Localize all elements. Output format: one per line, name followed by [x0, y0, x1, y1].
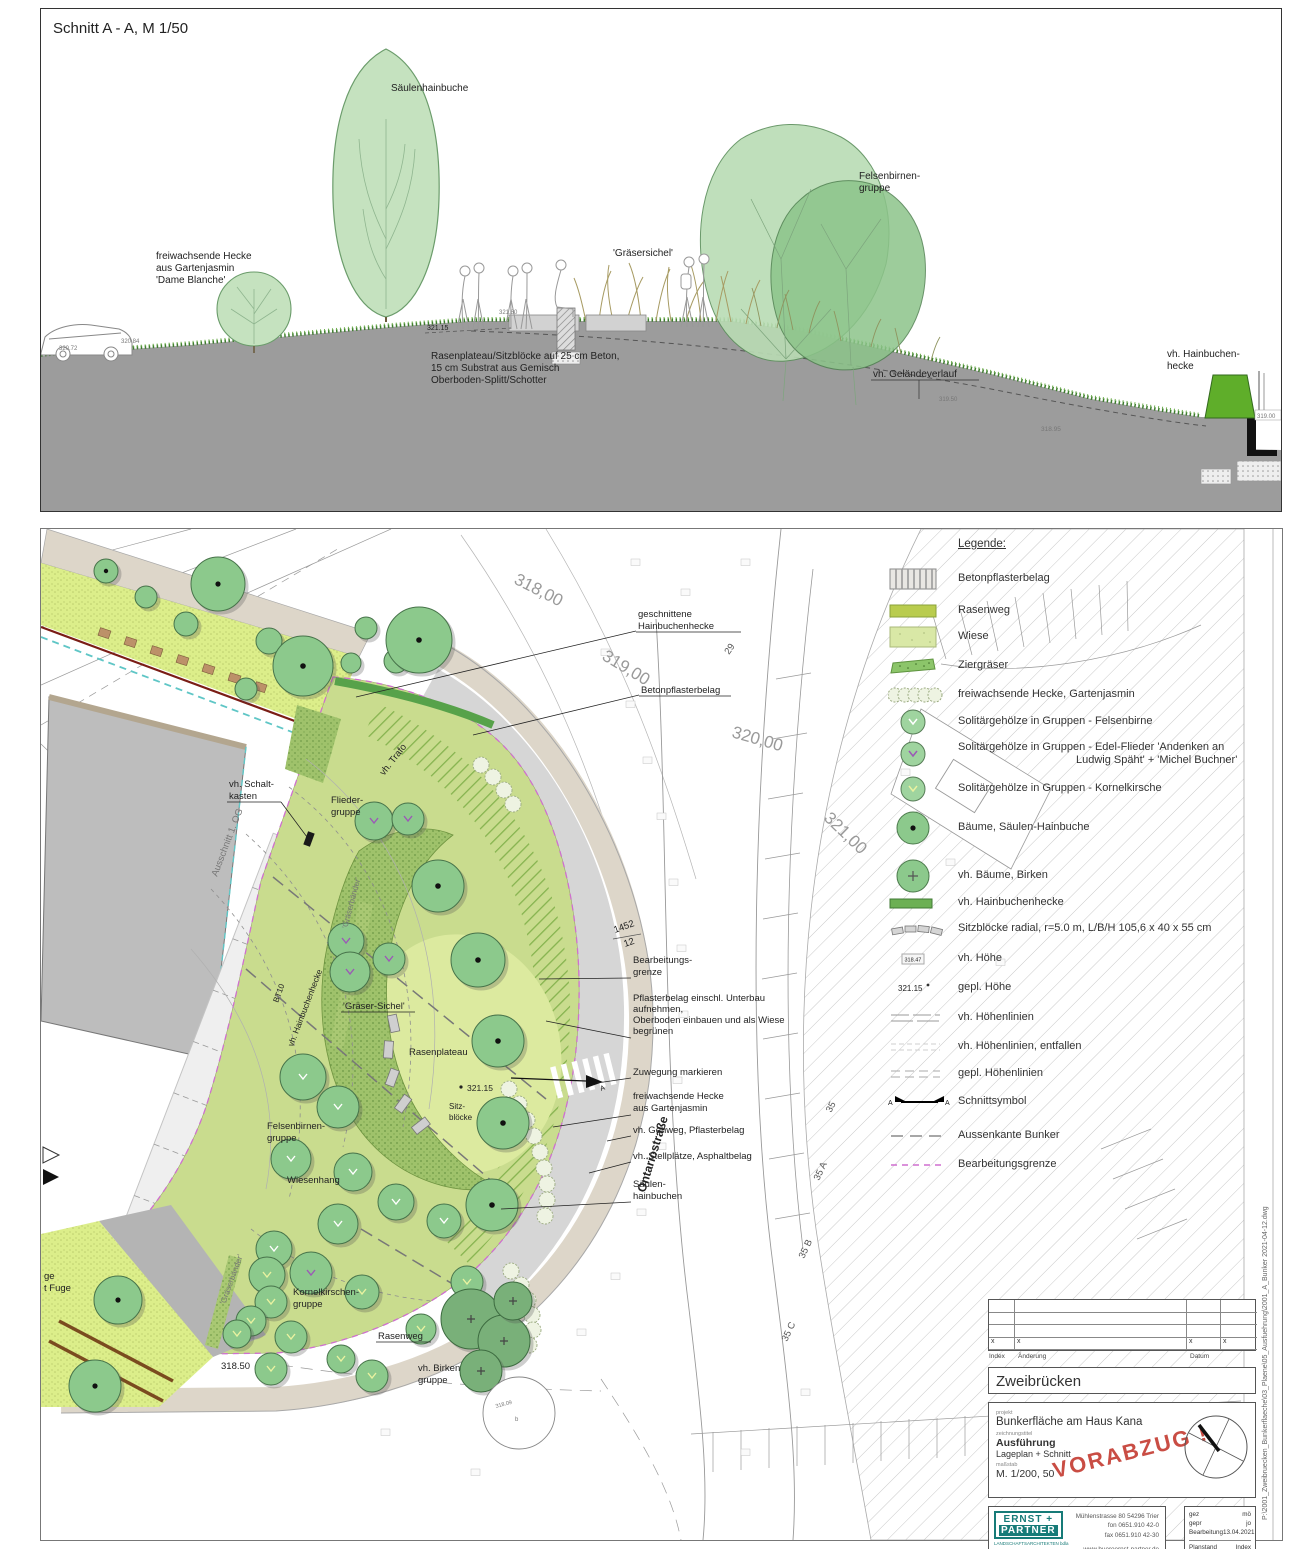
svg-text:321.15: 321.15: [898, 984, 923, 993]
label-hecke-2: aus Gartenjasmin: [156, 263, 234, 274]
legend-item-vh-hoehe: 318.47 vh. Höhe: [888, 946, 1002, 972]
legend-item-vh-hoehenlinien: vh. Höhenlinien: [888, 1005, 1034, 1031]
file-path-vertical: P:\2001_Zweibruecken_Bunkerflaeche\03_Pl…: [1262, 1206, 1269, 1520]
svg-text:318.47: 318.47: [905, 958, 922, 964]
label-birken-1: vh. Birken: [418, 1363, 460, 1374]
firm-web: www.bueroernst-partner.de: [1076, 1545, 1159, 1549]
label-hoehe-318: 318.50: [221, 1361, 250, 1372]
section-panel: Schnitt A - A, M 1/50 Säulenhainbuche fr…: [40, 8, 1282, 512]
edelflieder-circle-icon: [888, 739, 958, 769]
label-freiw-hecke-1: freiwachsende Hecke: [633, 1091, 724, 1102]
drawing-sheet: Schnitt A - A, M 1/50 Säulenhainbuche fr…: [0, 0, 1290, 1549]
label-freiw-hecke-2: aus Gartenjasmin: [633, 1103, 707, 1114]
elev-321-80: 321.80: [499, 310, 518, 316]
project-box: projekt Bunkerfläche am Haus Kana zeichn…: [988, 1402, 1256, 1498]
label-hecke-1: freiwachsende Hecke: [156, 251, 252, 262]
hainbuchenhecke-bar-icon: [888, 891, 958, 915]
sitzbloecke-icon: [888, 917, 958, 941]
elev-320-72: 320.72: [59, 346, 78, 352]
aenderung-label: Änderung: [1018, 1353, 1046, 1360]
label-schaltkasten-2: kasten: [229, 791, 257, 802]
people-figures: [457, 254, 709, 329]
elev-321-15: 321.15: [427, 325, 449, 332]
label-gelaendeverlauf: vh. Geländeverlauf: [873, 369, 957, 380]
label-kornelkirschen-2: gruppe: [293, 1299, 323, 1310]
label-hoehe-321: 321.15: [467, 1083, 493, 1093]
legend-item-vh-hainbuchenhecke: vh. Hainbuchenhecke: [888, 890, 1064, 916]
gez-value: mö: [1242, 1510, 1251, 1519]
kornelkirsche-circle-icon: [888, 776, 958, 802]
legend-item-aussenkante: Aussenkante Bunker: [888, 1123, 1060, 1149]
label-bearbeitungsgrenze-1: Bearbeitungs-: [633, 955, 692, 966]
legend-item-kornelkirsche: Solitärgehölze in Gruppen - Kornelkirsch…: [888, 776, 1162, 802]
bearbeitung-date: 13.04.2021: [1223, 1528, 1255, 1537]
city-box: Zweibrücken: [988, 1367, 1256, 1394]
rasenweg-swatch-icon: [888, 599, 958, 623]
label-saeulenhainbuchen-2: hainbuchen: [633, 1191, 682, 1202]
label-geschnittene-hecke-1: geschnittene: [638, 609, 692, 620]
label-kornelkirschen-1: Kornelkirschen-: [293, 1287, 359, 1298]
label-felsenbirnen-1: Felsenbirnen-: [267, 1121, 325, 1132]
label-felsenbirnen-2: gruppe: [859, 183, 891, 194]
gepl-hoehenlinien-icon: [888, 1062, 958, 1086]
label-graeser-sichel: 'Gräser-Sichel': [343, 1001, 405, 1012]
label-flieder-1: Flieder-: [331, 795, 363, 806]
legend-item-wiese: Wiese: [888, 624, 989, 650]
label-rasenplateau: Rasenplateau: [409, 1047, 468, 1058]
label-plateau-2: 15 cm Substrat aus Gemisch: [431, 363, 559, 374]
hoehenlinien-entfallen-icon: [888, 1035, 958, 1059]
label-sitzbloecke-1: Sitz-: [449, 1102, 465, 1111]
saeulenhainbuche-circle-icon: [888, 808, 958, 848]
legend-item-gepl-hoehenlinien: gepl. Höhenlinien: [888, 1061, 1043, 1087]
label-fragment-2: t Fuge: [44, 1283, 71, 1294]
section-hainbuchenhecke: [1205, 375, 1255, 418]
legend-item-felsenbirne: Solitärgehölze in Gruppen - Felsenbirne: [888, 709, 1152, 735]
ernst-partner-logo: ERNST + PARTNER: [994, 1511, 1063, 1539]
betonpflaster-swatch-icon: [888, 567, 958, 591]
label-zuwegung: Zuwegung markieren: [633, 1067, 722, 1078]
felsenbirne-circle-icon: [888, 709, 958, 735]
retaining-wall: [1247, 418, 1256, 452]
label-pflasterbelag-3: Oberboden einbauen und als Wiese: [633, 1015, 785, 1026]
legend-item-bearbeitungsgrenze: Bearbeitungsgrenze: [888, 1152, 1056, 1178]
elev-320-84: 320.84: [121, 339, 140, 345]
svg-text:A: A: [945, 1100, 950, 1107]
label-gehweg: vh. Gehweg, Pflasterbelag: [633, 1125, 744, 1136]
label-graesersichel: 'Gräsersichel': [613, 248, 673, 259]
gepr-value: jo: [1246, 1519, 1251, 1528]
approvals-box: gezmö geprjo Bearbeitung13.04.2021 Plans…: [1184, 1506, 1256, 1549]
legend-item-ziergraeser: Ziergräser: [888, 653, 1008, 679]
label-pflasterbelag-4: begrünen: [633, 1026, 673, 1037]
revision-table: x x x x: [988, 1299, 1256, 1351]
section-drawing: Schnitt A - A, M 1/50 Säulenhainbuche fr…: [41, 9, 1281, 511]
vh-hoehenlinien-icon: [888, 1006, 958, 1030]
label-betonpflasterbelag: Betonpflasterbelag: [641, 685, 720, 696]
label-schaltkasten-1: vh. Schalt-: [229, 779, 274, 790]
legend-item-hoehenlinien-entfallen: vh. Höhenlinien, entfallen: [888, 1034, 1082, 1060]
label-pflasterbelag-2: aufnehmen,: [633, 1004, 683, 1015]
datum-label: Datum: [1190, 1353, 1209, 1360]
label-wiesenhang: Wiesenhang: [287, 1175, 340, 1186]
label-birken-2: gruppe: [418, 1375, 448, 1386]
legend-item-hecke-gartenjasmin: freiwachsende Hecke, Gartenjasmin: [888, 682, 1135, 708]
svg-text:A: A: [888, 1100, 893, 1107]
retaining-foot: [1247, 450, 1277, 456]
label-hecke-3: 'Dame Blanche': [156, 275, 226, 286]
vh-hoehe-icon: 318.47: [888, 947, 958, 971]
label-plateau-3: Oberboden-Splitt/Schotter: [431, 375, 547, 386]
aussenkante-icon: [888, 1124, 958, 1148]
legend-item-schnittsymbol: A A Schnittsymbol: [888, 1089, 1026, 1115]
label-hainbuchenhecke-2: hecke: [1167, 361, 1194, 372]
label-saeulenhainbuche: Säulenhainbuche: [391, 83, 469, 94]
elev-318-95: 318.95: [1041, 426, 1061, 433]
label-rasenweg: Rasenweg: [378, 1331, 423, 1342]
legend-item-gepl-hoehe: 321.15 gepl. Höhe: [888, 975, 1011, 1001]
label-felsenbirnen-2: gruppe: [267, 1133, 297, 1144]
gepl-hoehe-icon: 321.15: [888, 976, 958, 1000]
wiese-swatch-icon: [888, 625, 958, 649]
legend-item-saeulen-hainbuche: Bäume, Säulen-Hainbuche: [888, 806, 1089, 850]
index-label: Index: [989, 1353, 1005, 1360]
firm-box: ERNST + PARTNER LANDSCHAFTSARCHITEKTEN b…: [988, 1506, 1166, 1549]
legend-item-betonpflasterbelag: Betonpflasterbelag: [888, 566, 1050, 592]
label-felsenbirnen-1: Felsenbirnen-: [859, 171, 920, 182]
legend-item-sitzbloecke: Sitzblöcke radial, r=5.0 m, L/B/H 105,6 …: [888, 916, 1211, 942]
survey-tree-circle: [483, 1377, 555, 1449]
label-plateau-1: Rasenplateau/Sitzblöcke auf 25 cm Beton,: [431, 351, 619, 362]
planstand-value: Index: [1236, 1543, 1251, 1549]
label-bearbeitungsgrenze-2: grenze: [633, 967, 662, 978]
elev-319-00: 319.00: [1257, 414, 1276, 420]
concrete-block: [1201, 469, 1231, 484]
section-title: Schnitt A - A, M 1/50: [53, 20, 188, 37]
legend-title: Legende:: [958, 538, 1006, 550]
hecke-chain-icon: [888, 683, 958, 707]
label-sitzbloecke-2: blöcke: [449, 1113, 473, 1122]
bearbeitungsgrenze-icon: [888, 1153, 958, 1177]
elev-319-50: 319.50: [939, 397, 958, 403]
north-arrow-icon: [1181, 1411, 1251, 1483]
label-geschnittene-hecke-2: Hainbuchenhecke: [638, 621, 714, 632]
ziergraeser-swatch-icon: [888, 654, 958, 678]
schnittsymbol-icon: A A: [888, 1090, 958, 1114]
legend-item-rasenweg: Rasenweg: [888, 598, 1010, 624]
city-name: Zweibrücken: [996, 1373, 1081, 1390]
legend-item-edelflieder: Solitärgehölze in Gruppen - Edel-Flieder…: [888, 734, 1237, 774]
label-flieder-2: gruppe: [331, 807, 361, 818]
label-fragment-1: ge: [44, 1271, 55, 1282]
section-ground: [41, 321, 1281, 511]
firm-address: Mühlenstrasse 80 54296 Trier fon 0651.91…: [1076, 1512, 1159, 1549]
label-hainbuchenhecke-1: vh. Hainbuchen-: [1167, 349, 1240, 360]
concrete-block: [1237, 461, 1281, 481]
label-pflasterbelag-1: Pflasterbelag einschl. Unterbau: [633, 993, 765, 1004]
